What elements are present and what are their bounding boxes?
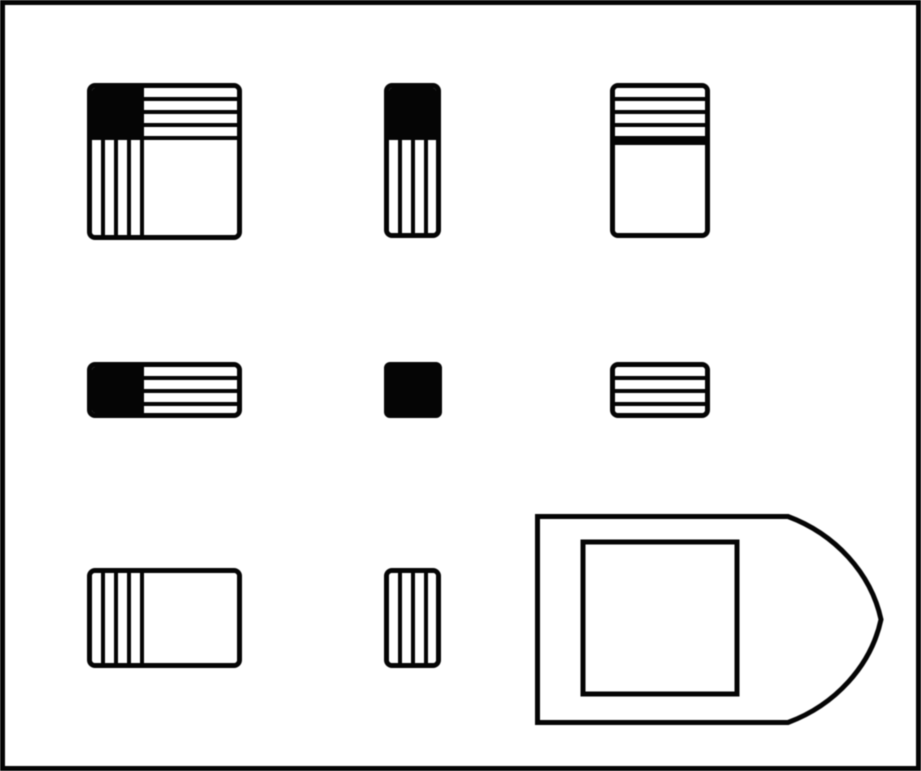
figure-frame bbox=[0, 0, 921, 771]
answer-blank-square bbox=[583, 542, 737, 694]
matrix-cell-r1c2 bbox=[384, 83, 441, 238]
matrix-cell-r1c3 bbox=[610, 83, 710, 238]
matrix-cell-r3c1 bbox=[87, 568, 242, 668]
r3c1-vertical-stripes-region bbox=[92, 573, 144, 663]
r3c1-blank-region bbox=[144, 573, 237, 663]
r1c2-solid-black-region bbox=[389, 88, 436, 140]
r1c1-solid-black-region bbox=[92, 88, 144, 140]
r1c3-horizontal-stripes-region bbox=[615, 88, 705, 145]
r2c1-horizontal-stripes-region bbox=[144, 367, 237, 413]
r2c1-solid-black-region bbox=[92, 367, 144, 413]
matrix-cell-r2c2 bbox=[384, 362, 442, 418]
r1c3-blank-region bbox=[615, 145, 705, 233]
r1c2-vertical-stripes-region bbox=[389, 140, 436, 233]
matrix-cell-r3c2 bbox=[384, 568, 441, 668]
matrix-cell-r2c3 bbox=[610, 362, 710, 418]
matrix-cell-r1c1 bbox=[87, 83, 242, 240]
puzzle-figure bbox=[0, 0, 921, 771]
answer-pointer bbox=[534, 513, 888, 727]
r1c1-vertical-stripes-region bbox=[92, 140, 144, 235]
r3c2-vertical-stripes-region bbox=[389, 573, 436, 663]
r1c1-horizontal-stripes-region bbox=[144, 88, 237, 140]
matrix-cell-r2c1 bbox=[87, 362, 242, 418]
r1c1-blank-region bbox=[144, 140, 237, 235]
r2c3-horizontal-stripes-region bbox=[615, 367, 705, 413]
